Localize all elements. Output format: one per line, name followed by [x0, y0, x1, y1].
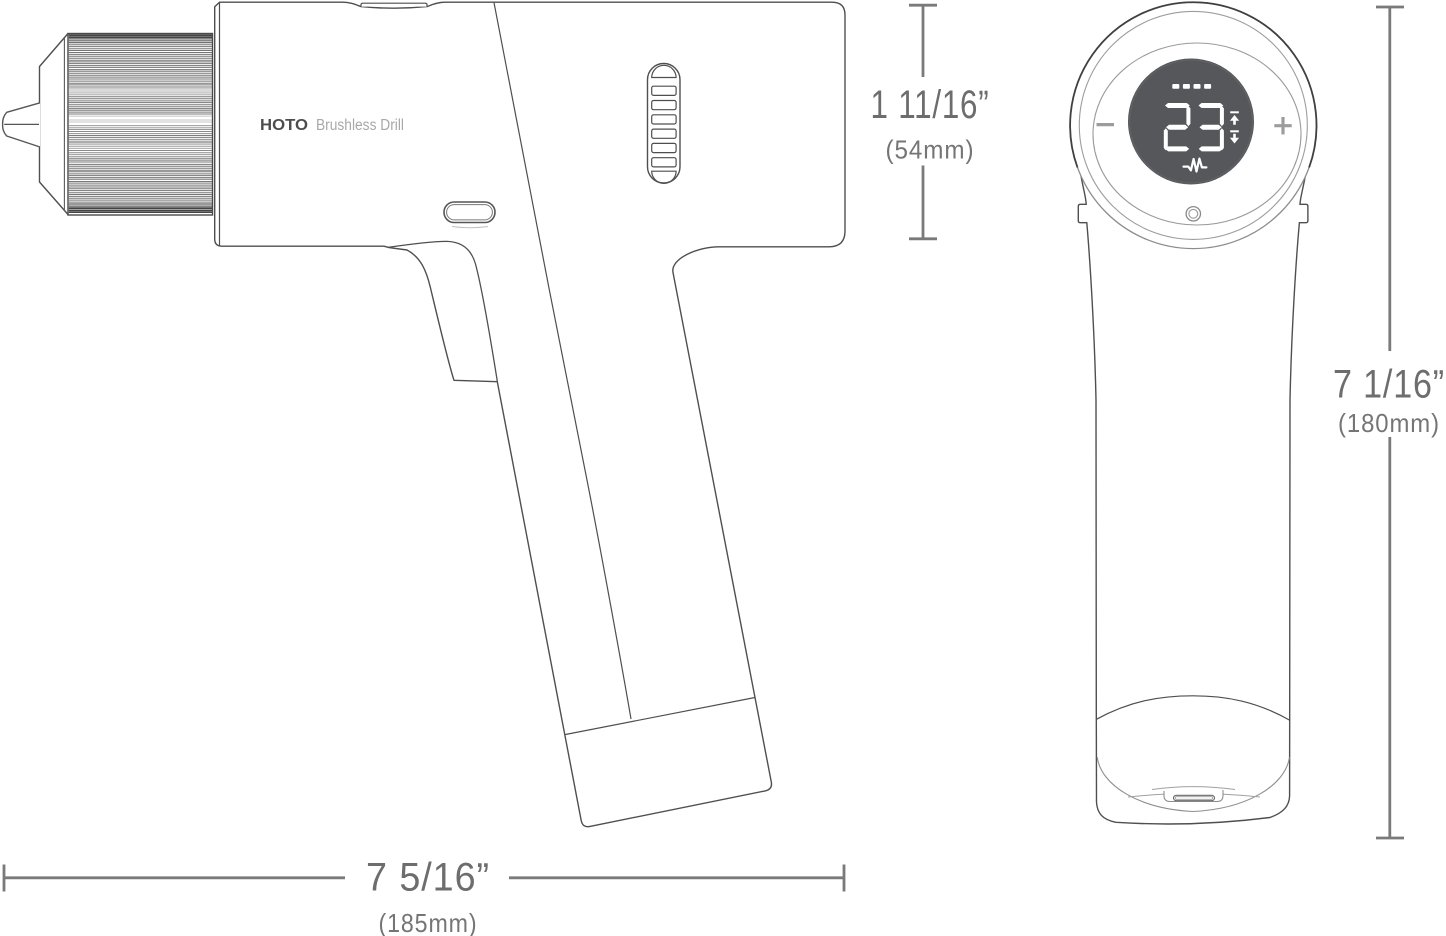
svg-text:HOTO: HOTO — [260, 117, 308, 134]
svg-text:(180mm): (180mm) — [1338, 408, 1440, 438]
svg-text:(185mm): (185mm) — [379, 908, 478, 936]
svg-text:7 1/16”: 7 1/16” — [1333, 363, 1445, 407]
svg-text:1 11/16”: 1 11/16” — [871, 83, 990, 127]
svg-text:7 5/16”: 7 5/16” — [366, 856, 490, 900]
svg-text:Brushless Drill: Brushless Drill — [316, 117, 404, 134]
svg-text:(54mm): (54mm) — [886, 135, 975, 165]
